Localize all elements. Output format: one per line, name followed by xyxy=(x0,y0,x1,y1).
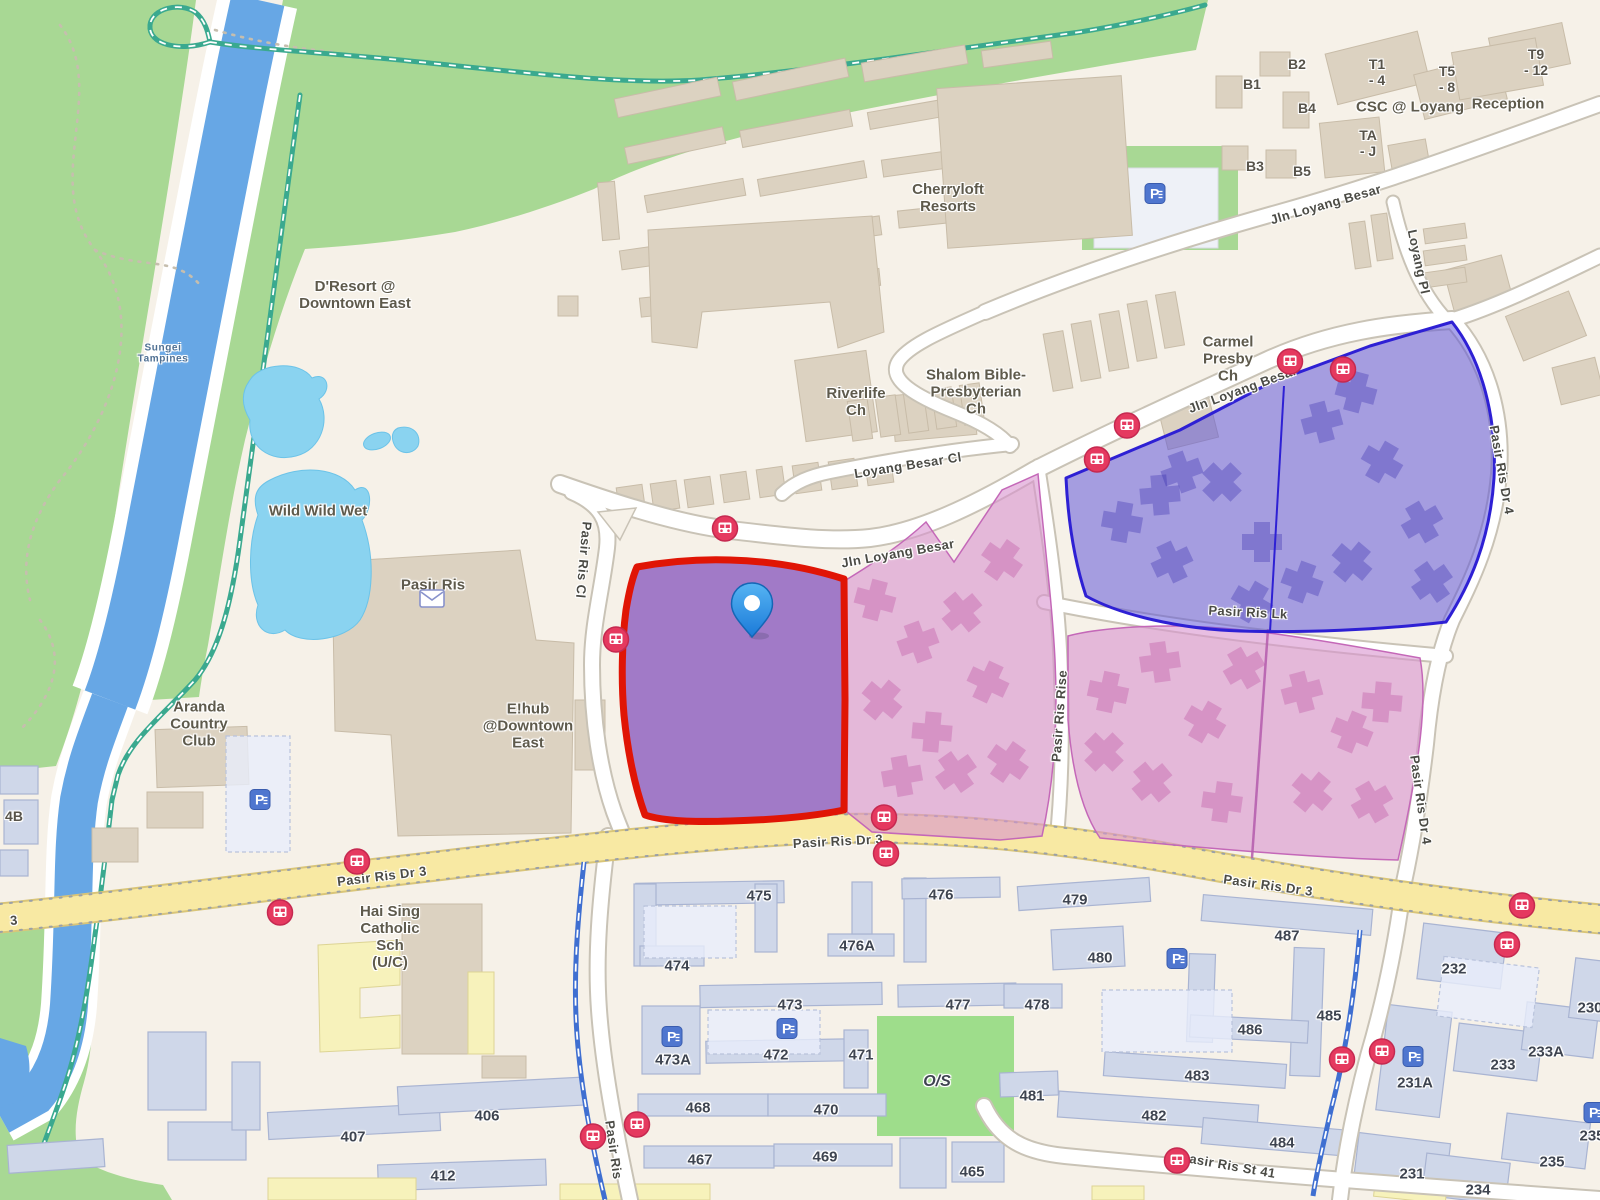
zone-blue[interactable] xyxy=(1066,322,1494,632)
location-pin[interactable] xyxy=(729,582,775,645)
base-map xyxy=(0,0,1600,1200)
zone-pink-east[interactable] xyxy=(1068,626,1423,860)
map-canvas[interactable]: Cherryloft ResortsD'Resort @ Downtown Ea… xyxy=(0,0,1600,1200)
